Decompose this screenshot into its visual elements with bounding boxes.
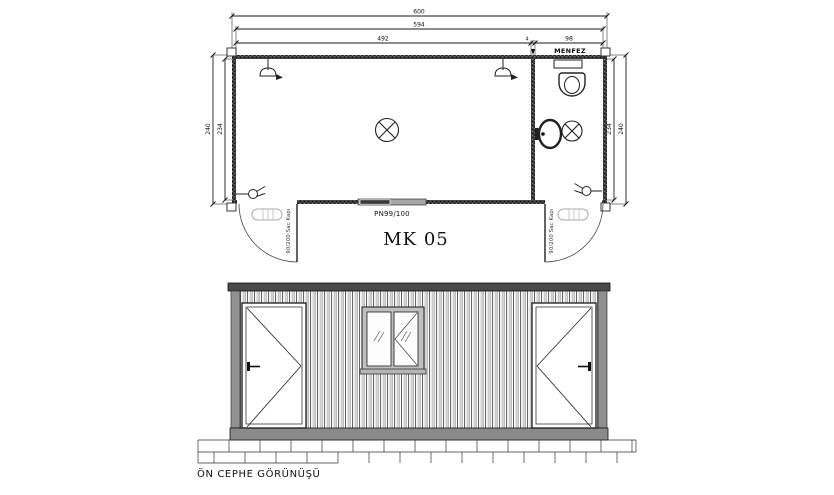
elevation-door-left — [242, 303, 306, 428]
foundation — [198, 440, 636, 463]
brick-joints-row2 — [214, 452, 617, 463]
wall-partition — [531, 59, 535, 200]
dim-wc-width: 98 — [565, 36, 573, 43]
floor-plan: 600 594 492 4 98 MENFEZ 240 234 — [205, 9, 629, 263]
ceiling-light-icon — [562, 121, 582, 141]
plan-window-label: PN99/100 — [374, 210, 410, 218]
door-step — [252, 209, 282, 220]
door-right: 90/200 Sac Kapı — [545, 204, 603, 262]
vent-opening — [554, 60, 582, 68]
dim-left-outer: 240 — [205, 123, 212, 135]
washbasin-icon — [535, 120, 561, 148]
door-step-lines — [263, 209, 273, 220]
dim-right-outer: 240 — [618, 123, 625, 135]
door-step — [558, 209, 588, 220]
dimension-ticks — [230, 14, 610, 46]
door-right-label: 90/200 Sac Kapı — [549, 208, 555, 253]
elevation-door-right — [532, 303, 596, 428]
ceiling-light-icon — [376, 119, 399, 142]
plan-dimensions-top: 600 594 492 4 98 MENFEZ — [230, 9, 610, 59]
dim-total-width: 600 — [413, 9, 425, 16]
toilet-icon — [559, 73, 585, 96]
corner-post-left — [231, 291, 240, 428]
dim-right-inner: 234 — [606, 123, 613, 135]
top-rail — [228, 283, 610, 291]
elevation-caption: ÖN CEPHE GÖRÜNÜŞÜ — [197, 467, 320, 480]
corner-posts — [227, 48, 610, 211]
cad-sheet: 600 594 492 4 98 MENFEZ 240 234 — [0, 0, 834, 495]
front-elevation: ÖN CEPHE GÖRÜNÜŞÜ — [197, 283, 636, 480]
door-left: 90/200 Sac Kapı — [239, 204, 297, 262]
window-sill — [360, 369, 426, 374]
wall-top — [232, 55, 607, 59]
wall-right — [603, 55, 607, 204]
dim-inner-width: 594 — [413, 22, 425, 29]
plan-dimensions-right: 234 240 — [606, 53, 629, 207]
dim-left-inner: 234 — [217, 123, 224, 135]
elevation-window — [360, 307, 426, 374]
brick-joints-row1 — [229, 440, 632, 452]
plan-dimensions-left: 240 234 — [205, 53, 232, 207]
bottom-rail — [230, 428, 608, 440]
partition-arrow — [531, 49, 535, 55]
plan-window-core — [360, 200, 390, 204]
corner-post-right — [598, 291, 607, 428]
wall-left — [232, 55, 236, 204]
window-pane-right — [394, 312, 418, 366]
window-pane-left — [367, 312, 391, 366]
dim-main-room: 492 — [377, 36, 389, 43]
door-left-label: 90/200 Sac Kapı — [286, 208, 292, 253]
light-switch-icon — [236, 187, 265, 199]
drawing-canvas: 600 594 492 4 98 MENFEZ 240 234 — [0, 0, 834, 495]
page-title: MK 05 — [383, 229, 449, 250]
extension-lines — [232, 12, 607, 58]
shower-head-icon — [260, 59, 283, 80]
light-switch-icon — [575, 184, 603, 196]
dim-partition: 4 — [525, 37, 528, 43]
vent-label: MENFEZ — [554, 47, 586, 55]
plan-walls — [227, 48, 610, 211]
shower-head-icon — [495, 59, 518, 80]
dimension-lines — [232, 16, 607, 43]
door-step-lines — [569, 209, 579, 220]
